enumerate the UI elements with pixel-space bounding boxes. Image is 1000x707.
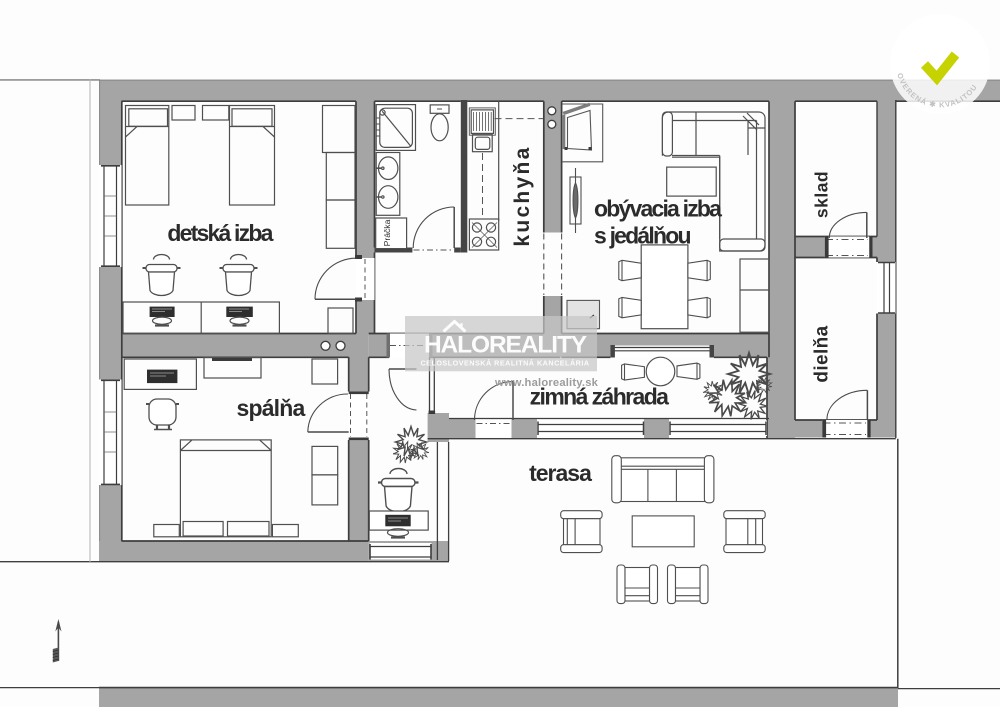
svg-text:dielňa: dielňa [812,325,833,382]
svg-text:spálňa: spálňa [236,395,305,421]
svg-text:Práčka: Práčka [382,219,392,246]
svg-text:obývacia izba: obývacia izba [594,196,722,222]
svg-text:terasa: terasa [529,460,592,486]
svg-text:www.haloreality.sk: www.haloreality.sk [494,377,599,389]
svg-text:CELOSLOVENSKÁ REALITNÁ KANCELÁ: CELOSLOVENSKÁ REALITNÁ KANCELÁRIA [420,359,589,368]
svg-text:s jedálňou: s jedálňou [594,223,690,249]
svg-text:kuchyňa: kuchyňa [511,145,534,246]
svg-text:HALOREALITY: HALOREALITY [424,332,587,359]
svg-text:sklad: sklad [812,171,832,218]
svg-text:detská izba: detská izba [167,220,273,246]
